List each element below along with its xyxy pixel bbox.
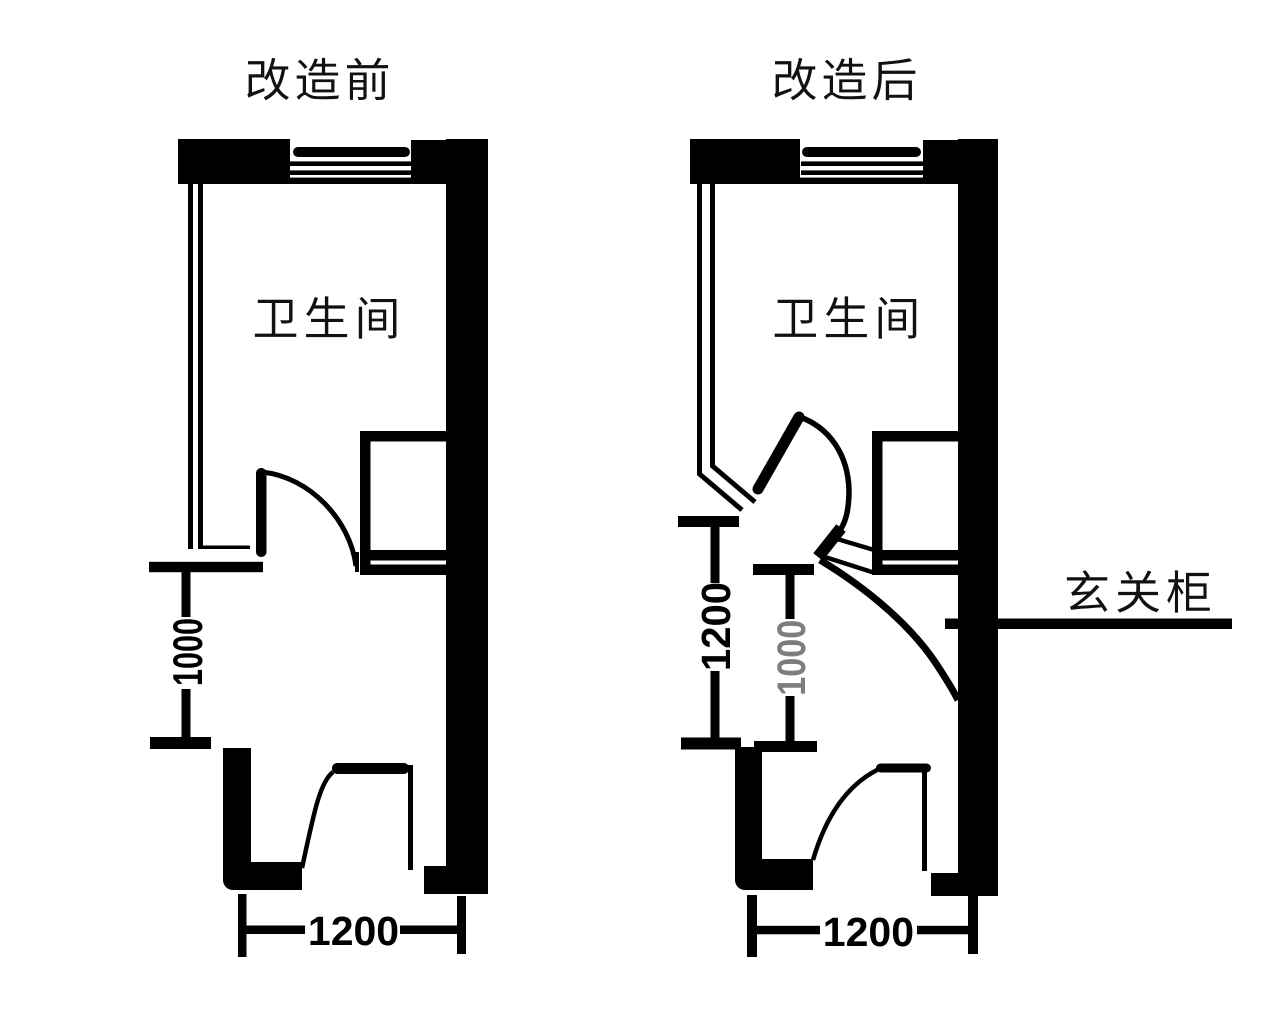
svg-text:1200: 1200: [308, 908, 399, 954]
svg-text:1000: 1000: [770, 620, 814, 696]
svg-text:1200: 1200: [823, 909, 914, 955]
svg-text:1000: 1000: [164, 618, 211, 686]
svg-text:1200: 1200: [693, 582, 739, 671]
